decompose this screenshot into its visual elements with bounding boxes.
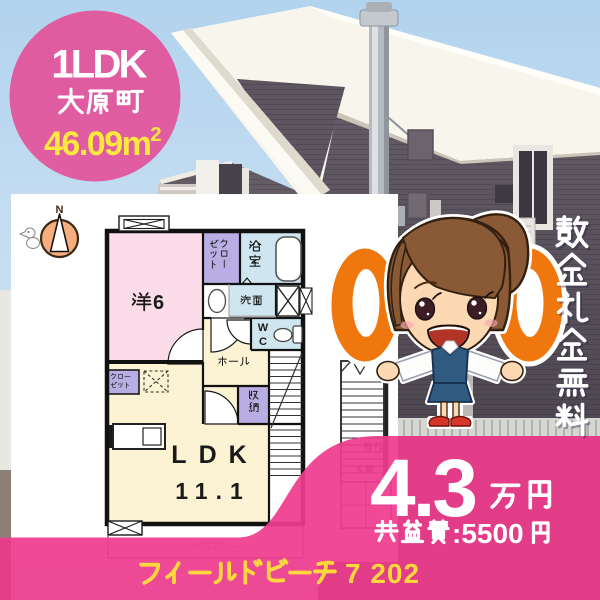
- svg-text:1LDK: 1LDK: [51, 43, 147, 87]
- svg-text::5500: :5500: [452, 518, 524, 549]
- svg-text:6: 6: [153, 292, 164, 314]
- svg-text:11.1: 11.1: [175, 478, 251, 504]
- svg-text:46.09m2: 46.09m2: [44, 124, 161, 163]
- svg-text:7 202: 7 202: [345, 558, 420, 589]
- svg-text:LDK: LDK: [171, 441, 258, 469]
- svg-text:W: W: [258, 322, 269, 334]
- svg-text:C: C: [259, 336, 267, 348]
- svg-text:N: N: [56, 204, 64, 216]
